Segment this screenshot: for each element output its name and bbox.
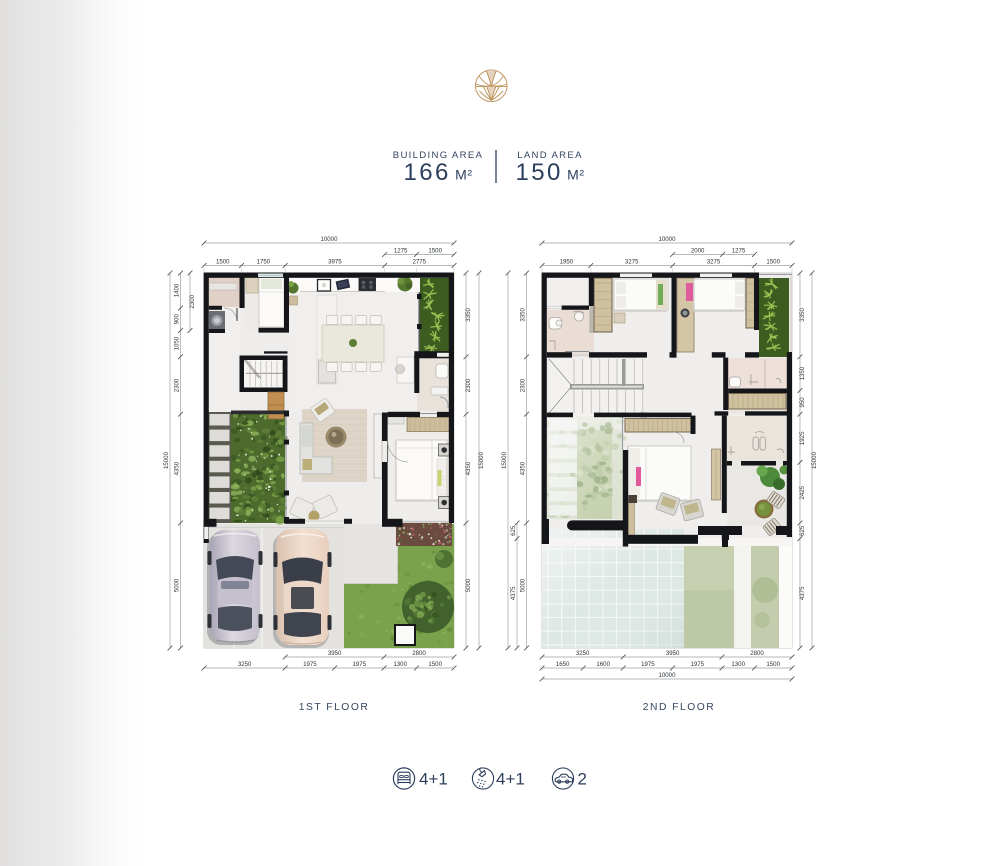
svg-text:5000: 5000 [519, 578, 526, 592]
svg-text:2300: 2300 [189, 294, 196, 308]
svg-text:900: 900 [173, 314, 180, 325]
svg-text:1975: 1975 [353, 661, 367, 668]
svg-text:4350: 4350 [465, 461, 472, 475]
svg-text:3250: 3250 [576, 650, 590, 657]
svg-text:950: 950 [799, 397, 806, 408]
svg-text:4350: 4350 [173, 461, 180, 475]
svg-text:3250: 3250 [238, 661, 252, 668]
svg-text:1275: 1275 [394, 247, 408, 254]
svg-text:3950: 3950 [328, 650, 342, 657]
svg-text:625: 625 [510, 525, 517, 536]
svg-text:4375: 4375 [799, 586, 806, 600]
svg-text:1050: 1050 [173, 336, 180, 350]
svg-text:15000: 15000 [163, 451, 170, 469]
svg-text:3950: 3950 [666, 650, 680, 657]
svg-text:10000: 10000 [321, 236, 339, 243]
svg-text:2300: 2300 [519, 378, 526, 392]
svg-text:1650: 1650 [556, 661, 570, 668]
svg-text:1275: 1275 [732, 247, 746, 254]
svg-text:2425: 2425 [799, 485, 806, 499]
svg-text:10000: 10000 [659, 236, 677, 243]
svg-text:1975: 1975 [691, 661, 705, 668]
svg-text:1600: 1600 [596, 661, 610, 668]
svg-text:3275: 3275 [707, 258, 721, 265]
svg-text:15000: 15000 [478, 451, 485, 469]
svg-text:2: 2 [578, 770, 587, 789]
svg-text:1750: 1750 [257, 258, 271, 265]
svg-text:2300: 2300 [173, 378, 180, 392]
svg-text:2800: 2800 [750, 650, 764, 657]
svg-text:1ST FLOOR: 1ST FLOOR [299, 702, 370, 713]
svg-text:2000: 2000 [691, 247, 705, 254]
svg-text:1300: 1300 [731, 661, 745, 668]
svg-text:1500: 1500 [766, 258, 780, 265]
svg-text:1975: 1975 [641, 661, 655, 668]
svg-text:3975: 3975 [328, 258, 342, 265]
svg-text:3350: 3350 [799, 308, 806, 322]
svg-text:15000: 15000 [501, 451, 508, 469]
svg-text:1350: 1350 [799, 366, 806, 380]
svg-text:10000: 10000 [659, 672, 677, 679]
svg-text:4375: 4375 [510, 586, 517, 600]
svg-text:1950: 1950 [560, 258, 574, 265]
svg-text:1500: 1500 [428, 247, 442, 254]
svg-text:1400: 1400 [173, 283, 180, 297]
svg-text:1975: 1975 [303, 661, 317, 668]
svg-text:1500: 1500 [766, 661, 780, 668]
svg-text:2300: 2300 [465, 378, 472, 392]
svg-text:5000: 5000 [465, 578, 472, 592]
svg-text:3350: 3350 [465, 308, 472, 322]
svg-text:4+1: 4+1 [419, 770, 448, 789]
svg-text:2775: 2775 [413, 258, 427, 265]
svg-text:2ND FLOOR: 2ND FLOOR [643, 702, 715, 713]
svg-text:2800: 2800 [412, 650, 426, 657]
svg-text:1300: 1300 [393, 661, 407, 668]
svg-text:4+1: 4+1 [496, 770, 525, 789]
svg-text:3275: 3275 [625, 258, 639, 265]
svg-text:1500: 1500 [216, 258, 230, 265]
svg-text:1925: 1925 [799, 431, 806, 445]
svg-text:3350: 3350 [519, 308, 526, 322]
svg-text:5000: 5000 [173, 578, 180, 592]
svg-text:1500: 1500 [428, 661, 442, 668]
svg-text:4350: 4350 [519, 461, 526, 475]
svg-text:625: 625 [799, 525, 806, 536]
svg-text:15000: 15000 [811, 451, 818, 469]
